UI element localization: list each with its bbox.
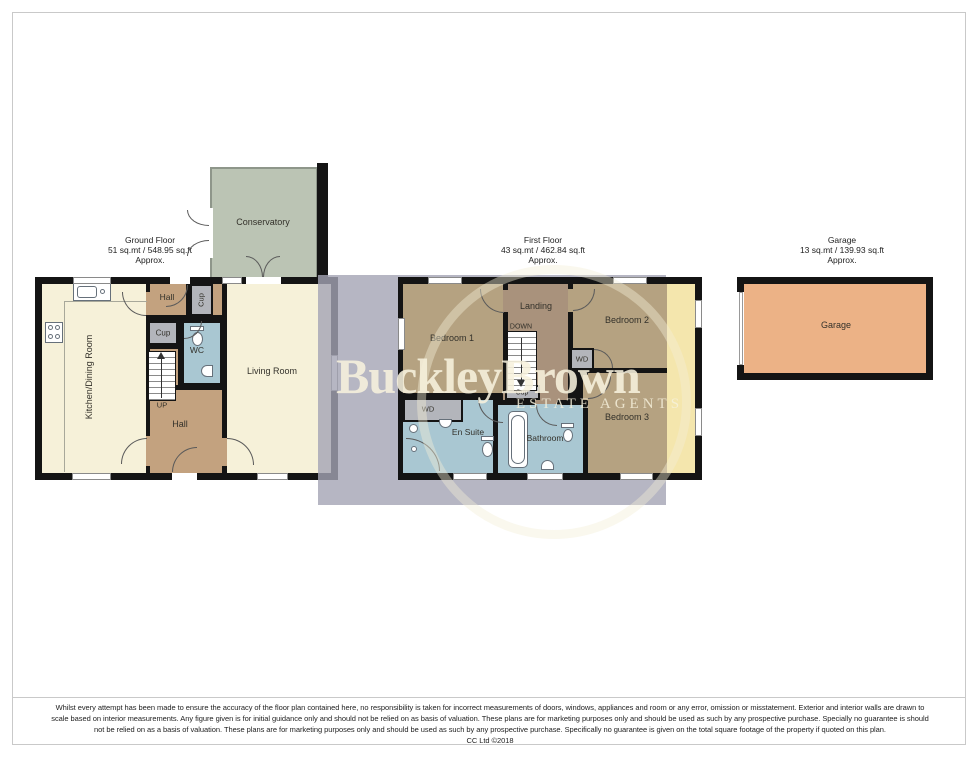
hob-burner (48, 325, 53, 330)
window (695, 408, 702, 436)
garage-wall-top (737, 277, 933, 284)
label-up: UP (157, 401, 167, 410)
footer-divider (12, 697, 966, 698)
label-conservatory: Conservatory (236, 217, 290, 227)
nook-sink (409, 424, 418, 433)
wall (222, 284, 227, 438)
floorplan-page: Ground Floor 51 sq.mt / 548.95 sq.ft App… (0, 0, 980, 769)
hob-burner (55, 325, 60, 330)
stairs-up-arrow (161, 358, 162, 398)
disclaimer: Whilst every attempt has been made to en… (13, 702, 967, 746)
label-garage: Garage (821, 320, 851, 330)
first-floor-title-block: First Floor 43 sq.mt / 462.84 sq.ft Appr… (453, 236, 633, 265)
hob-burner (55, 334, 60, 339)
garage-approx: Approx. (752, 256, 932, 266)
window (257, 473, 288, 480)
label-wc: WC (190, 345, 204, 355)
label-kitchen: Kitchen/Dining Room (84, 335, 94, 420)
window (695, 300, 702, 328)
garage-title-block: Garage 13 sq.mt / 139.93 sq.ft Approx. (752, 236, 932, 265)
label-hall: Hall (172, 419, 188, 429)
window (73, 277, 111, 284)
label-cup-top: Cup (197, 293, 206, 307)
window (398, 318, 405, 350)
wall (146, 466, 150, 480)
window (428, 277, 462, 284)
garage-wall-bottom (737, 373, 933, 380)
first-floor-approx: Approx. (453, 256, 633, 266)
label-hall-top: Hall (160, 292, 175, 302)
sink-tap (100, 289, 105, 294)
wall (222, 466, 227, 480)
wall (146, 284, 150, 292)
shower-head (411, 446, 417, 452)
wall (317, 163, 328, 284)
stairs-up-arrowhead (157, 352, 165, 359)
door-opening (246, 277, 281, 284)
watermark-brand: BuckleyBrown (336, 352, 640, 400)
disclaimer-line-1: Whilst every attempt has been made to en… (13, 702, 967, 713)
label-cup-mid: Cup (156, 329, 171, 338)
door-opening (170, 277, 190, 284)
garage-door (739, 292, 743, 365)
disclaimer-line-2: scale based on interior measurements. An… (13, 713, 967, 724)
garage-wall-stub (737, 365, 744, 380)
wall (146, 345, 182, 349)
window (72, 473, 111, 480)
label-living: Living Room (247, 366, 297, 376)
window (222, 277, 242, 284)
sink-bowl (77, 286, 97, 298)
watermark-tagline: ESTATE AGENTS (516, 396, 683, 413)
garage-wall-stub (737, 277, 744, 292)
disclaimer-line-3: not be relied on as a basis of valuation… (13, 724, 967, 735)
copyright: CC Ltd ©2018 (13, 735, 967, 746)
garage-wall-right (926, 277, 933, 380)
wc-sink (201, 365, 213, 377)
front-door-opening (172, 473, 197, 480)
counter-line (64, 301, 65, 472)
hob-burner (48, 334, 53, 339)
